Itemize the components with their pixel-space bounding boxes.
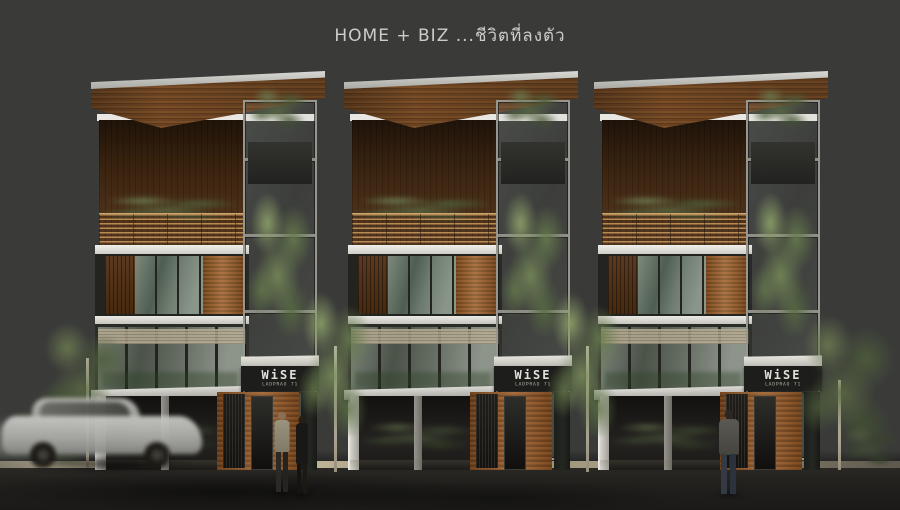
- glass-sliding-doors: [638, 256, 706, 314]
- wood-louver-panel: [105, 256, 135, 314]
- sign-location-text: LADPRAO 71: [262, 382, 298, 387]
- terrace-wood-railing: [99, 213, 245, 246]
- street-tree: [298, 286, 374, 472]
- shophouse-building: WiSE LADPRAO 71: [598, 70, 826, 470]
- pedestrian-man: [273, 412, 291, 492]
- terrace-wood-railing: [602, 213, 748, 246]
- atrium-tree-canopy: [249, 86, 311, 128]
- glass-sliding-doors: [135, 256, 203, 314]
- timber-entrance-wall: [470, 392, 552, 470]
- glass-entry-door: [754, 396, 776, 470]
- street-tree: [548, 286, 624, 472]
- glass-entry-door: [504, 396, 526, 470]
- atrium-tree-canopy: [502, 86, 564, 128]
- rooftop-terrace-floor: [352, 120, 498, 246]
- glass-entry-door: [251, 396, 273, 470]
- glass-reflection: [355, 372, 491, 388]
- timber-feature-panel: [706, 256, 748, 314]
- atrium-planter-box: [501, 142, 565, 184]
- floor-slab: [95, 245, 249, 254]
- terrace-wood-railing: [352, 213, 498, 246]
- passing-car: [2, 398, 210, 470]
- floor-slab: [348, 245, 502, 254]
- atrium-planter-box: [751, 142, 815, 184]
- third-floor: [95, 254, 249, 316]
- architectural-rendering: HOME + BIZ ...ชีวิตที่ลงตัว: [0, 0, 900, 510]
- glass-sliding-doors: [388, 256, 456, 314]
- sign-location-text: LADPRAO 71: [765, 382, 801, 387]
- pedestrian-woman: [295, 416, 309, 494]
- sign-project-name: WiSE: [765, 369, 802, 381]
- sign-project-name: WiSE: [262, 369, 299, 381]
- sign-location-text: LADPRAO 71: [515, 382, 551, 387]
- rooftop-terrace-floor: [99, 120, 245, 246]
- timber-feature-panel: [203, 256, 245, 314]
- dark-louver-door: [476, 394, 498, 468]
- glass-reflection: [605, 372, 741, 388]
- atrium-planter-box: [248, 142, 312, 184]
- timber-feature-panel: [456, 256, 498, 314]
- atrium-tree-canopy: [752, 86, 814, 128]
- rooftop-terrace-floor: [602, 120, 748, 246]
- car-wheel: [30, 442, 56, 468]
- column: [414, 396, 422, 470]
- shophouse-building: WiSE LADPRAO 71: [348, 70, 576, 470]
- floor-slab: [598, 245, 752, 254]
- hedge: [842, 424, 900, 466]
- sign-project-name: WiSE: [515, 369, 552, 381]
- pedestrian-man-walking: [716, 410, 742, 494]
- column: [664, 396, 672, 470]
- page-title: HOME + BIZ ...ชีวิตที่ลงตัว: [0, 22, 900, 49]
- car-wheel: [144, 442, 170, 468]
